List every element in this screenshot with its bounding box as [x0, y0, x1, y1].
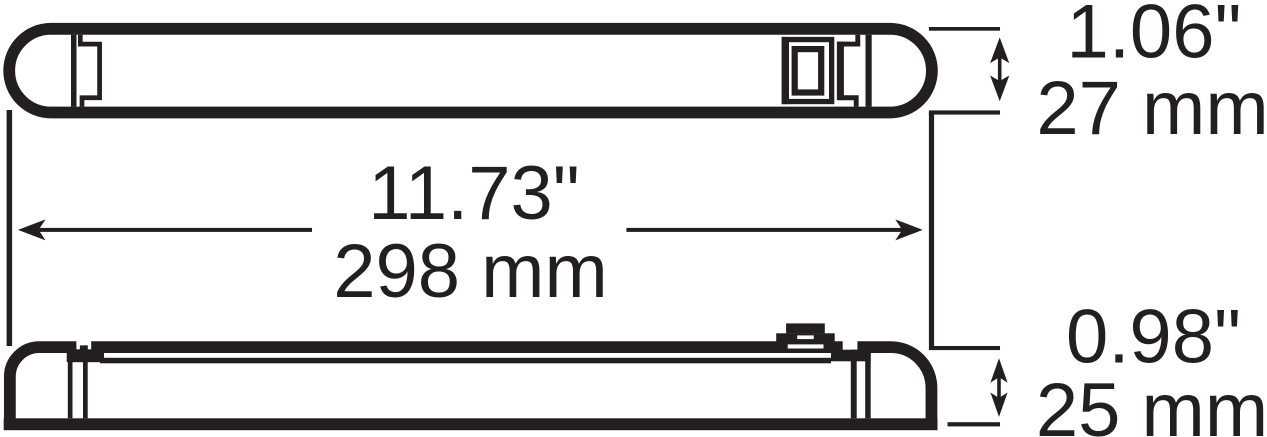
- svg-text:27 mm: 27 mm: [1036, 66, 1267, 151]
- svg-text:11.73": 11.73": [368, 151, 580, 236]
- svg-text:298 mm: 298 mm: [333, 229, 608, 314]
- svg-text:25 mm: 25 mm: [1036, 368, 1267, 437]
- svg-text:0.98": 0.98": [1066, 295, 1241, 380]
- svg-text:1.06": 1.06": [1067, 0, 1242, 75]
